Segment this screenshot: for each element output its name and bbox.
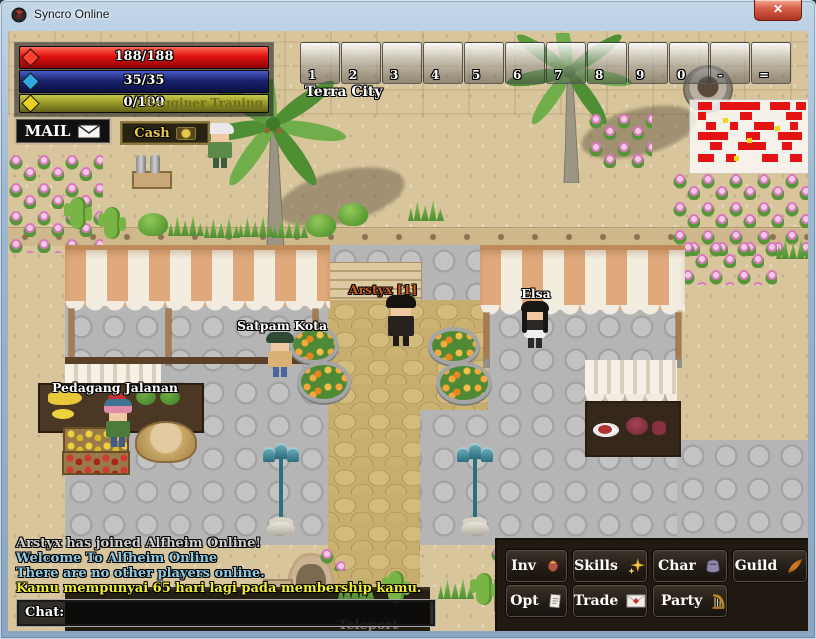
- milk-can: [136, 155, 146, 173]
- basket: [135, 421, 197, 463]
- street-lamp: [457, 443, 493, 535]
- mail-button[interactable]: MAIL: [16, 119, 110, 143]
- close-icon: ✕: [773, 2, 783, 16]
- document-icon: [547, 592, 563, 610]
- options-button[interactable]: Opt: [505, 584, 568, 618]
- hotbar-slot-1[interactable]: 1: [300, 42, 340, 84]
- inventory-button[interactable]: Inv: [505, 549, 568, 583]
- guild-button[interactable]: Guild: [732, 549, 808, 583]
- xp-bar: 0/100 Begginer Traning: [19, 94, 269, 113]
- trade-envelope-icon: [626, 593, 646, 609]
- hotbar-slot-9[interactable]: 9: [628, 42, 668, 84]
- milk-can: [150, 155, 160, 173]
- hotbar-slot-3[interactable]: 3: [382, 42, 422, 84]
- wooden-table: [132, 171, 172, 189]
- marigold-bed: [428, 327, 480, 365]
- meat: [598, 425, 612, 434]
- market-awning-right: [480, 245, 685, 310]
- awning-post: [676, 313, 681, 367]
- trade-button[interactable]: Trade: [572, 584, 648, 618]
- hotbar-slot-8[interactable]: 8: [587, 42, 627, 84]
- ham: [626, 417, 648, 435]
- window-title: Syncro Online: [34, 7, 109, 21]
- hotbar-slot-7[interactable]: 7: [546, 42, 586, 84]
- armor-icon: [704, 557, 722, 575]
- flower-patch: [8, 153, 103, 253]
- minimap-blocks: [690, 100, 808, 173]
- street-lamp: [263, 443, 299, 535]
- hotbar-slot-6[interactable]: 6: [505, 42, 545, 84]
- envelope-icon: [77, 124, 101, 139]
- feather-icon: [785, 557, 805, 575]
- game-viewport[interactable]: Arstyx [1] Satpam Kota Elsa Pedagang Jal…: [8, 31, 808, 631]
- hp-bar: 188/188: [19, 46, 269, 69]
- chat-line: Welcome To Alfheim Online: [16, 551, 217, 566]
- awning-scallop: [65, 301, 330, 311]
- chat-input[interactable]: Chat:: [16, 599, 436, 627]
- character-button[interactable]: Char: [652, 549, 728, 583]
- skills-button[interactable]: Skills: [572, 549, 648, 583]
- party-button[interactable]: Party: [652, 584, 728, 618]
- chat-line: Arstyx has joined Alfheim Online!: [16, 536, 261, 551]
- marigold-bed: [436, 362, 492, 404]
- npc-old-man[interactable]: [206, 123, 234, 168]
- harp-icon: [710, 592, 727, 610]
- cash-button[interactable]: Cash: [120, 121, 210, 145]
- grass-tuft: [408, 199, 444, 221]
- window-frame: Syncro Online ✕: [0, 0, 816, 639]
- title-bar[interactable]: Syncro Online ✕: [0, 0, 816, 31]
- market-awning-left: [65, 245, 330, 306]
- hp-gem-icon: [21, 48, 39, 66]
- hotbar-slot-5[interactable]: 5: [464, 42, 504, 84]
- lemons: [52, 409, 74, 419]
- npc-street-vendor[interactable]: [104, 399, 132, 447]
- npc-nametag-street-vendor: Pedagang Jalanan: [52, 380, 178, 395]
- application-window: Syncro Online ✕: [0, 0, 816, 639]
- player-character[interactable]: [386, 295, 416, 346]
- app-logo-icon: [11, 7, 27, 23]
- status-panel: 188/188 35/35 0/100 Begginer Traning: [14, 42, 274, 117]
- hotbar-slot-4[interactable]: 4: [423, 42, 463, 84]
- xp-quest-label: Begginer Traning: [144, 95, 263, 111]
- pouch-icon: [544, 557, 562, 575]
- chat-line: Kamu mempunyai 65 hari lagi pada members…: [16, 581, 421, 596]
- chat-line: There are no other players online.: [16, 566, 265, 581]
- cactus: [476, 573, 492, 605]
- cash-label: Cash: [134, 126, 170, 141]
- npc-nametag-guard: Satpam Kota: [237, 318, 327, 333]
- awning-post: [484, 313, 489, 367]
- npc-guard[interactable]: [266, 332, 294, 377]
- round-cactus: [338, 203, 368, 226]
- npc-shop-girl[interactable]: [521, 301, 549, 348]
- cactus: [70, 197, 86, 229]
- round-cactus: [306, 214, 336, 237]
- apple-crate: [62, 451, 130, 475]
- hotbar-slot-0[interactable]: 0: [669, 42, 709, 84]
- hotbar-slot-2[interactable]: 2: [341, 42, 381, 84]
- hotbar-slot-equals[interactable]: =: [751, 42, 791, 84]
- mp-value: 35/35: [124, 73, 165, 88]
- xp-gem-icon: [21, 94, 39, 112]
- close-button[interactable]: ✕: [754, 0, 802, 21]
- grass-tuft: [438, 577, 474, 599]
- meat: [652, 421, 666, 435]
- cactus: [104, 207, 120, 239]
- hotbar-slot-minus[interactable]: -: [710, 42, 750, 84]
- chat-input-label: Chat:: [25, 605, 64, 620]
- sparkles-icon: [626, 557, 646, 575]
- flower-patch: [588, 112, 652, 170]
- plaza-pavement-right: [677, 440, 808, 545]
- player-nametag: Arstyx [1]: [349, 282, 418, 297]
- flower-patch: [680, 240, 777, 285]
- coin-icon: [176, 127, 196, 140]
- round-cactus: [138, 213, 168, 236]
- minimap: [690, 100, 808, 173]
- meat-stall-awning: [585, 360, 677, 394]
- awning-scallop: [480, 305, 685, 315]
- marigold-bed: [297, 361, 351, 403]
- mail-label: MAIL: [25, 122, 71, 140]
- mp-bar: 35/35: [19, 70, 269, 93]
- npc-nametag-shop-girl: Elsa: [521, 286, 550, 301]
- location-label: Terra City: [305, 84, 382, 100]
- mp-gem-icon: [21, 72, 39, 90]
- hp-value: 188/188: [114, 49, 173, 64]
